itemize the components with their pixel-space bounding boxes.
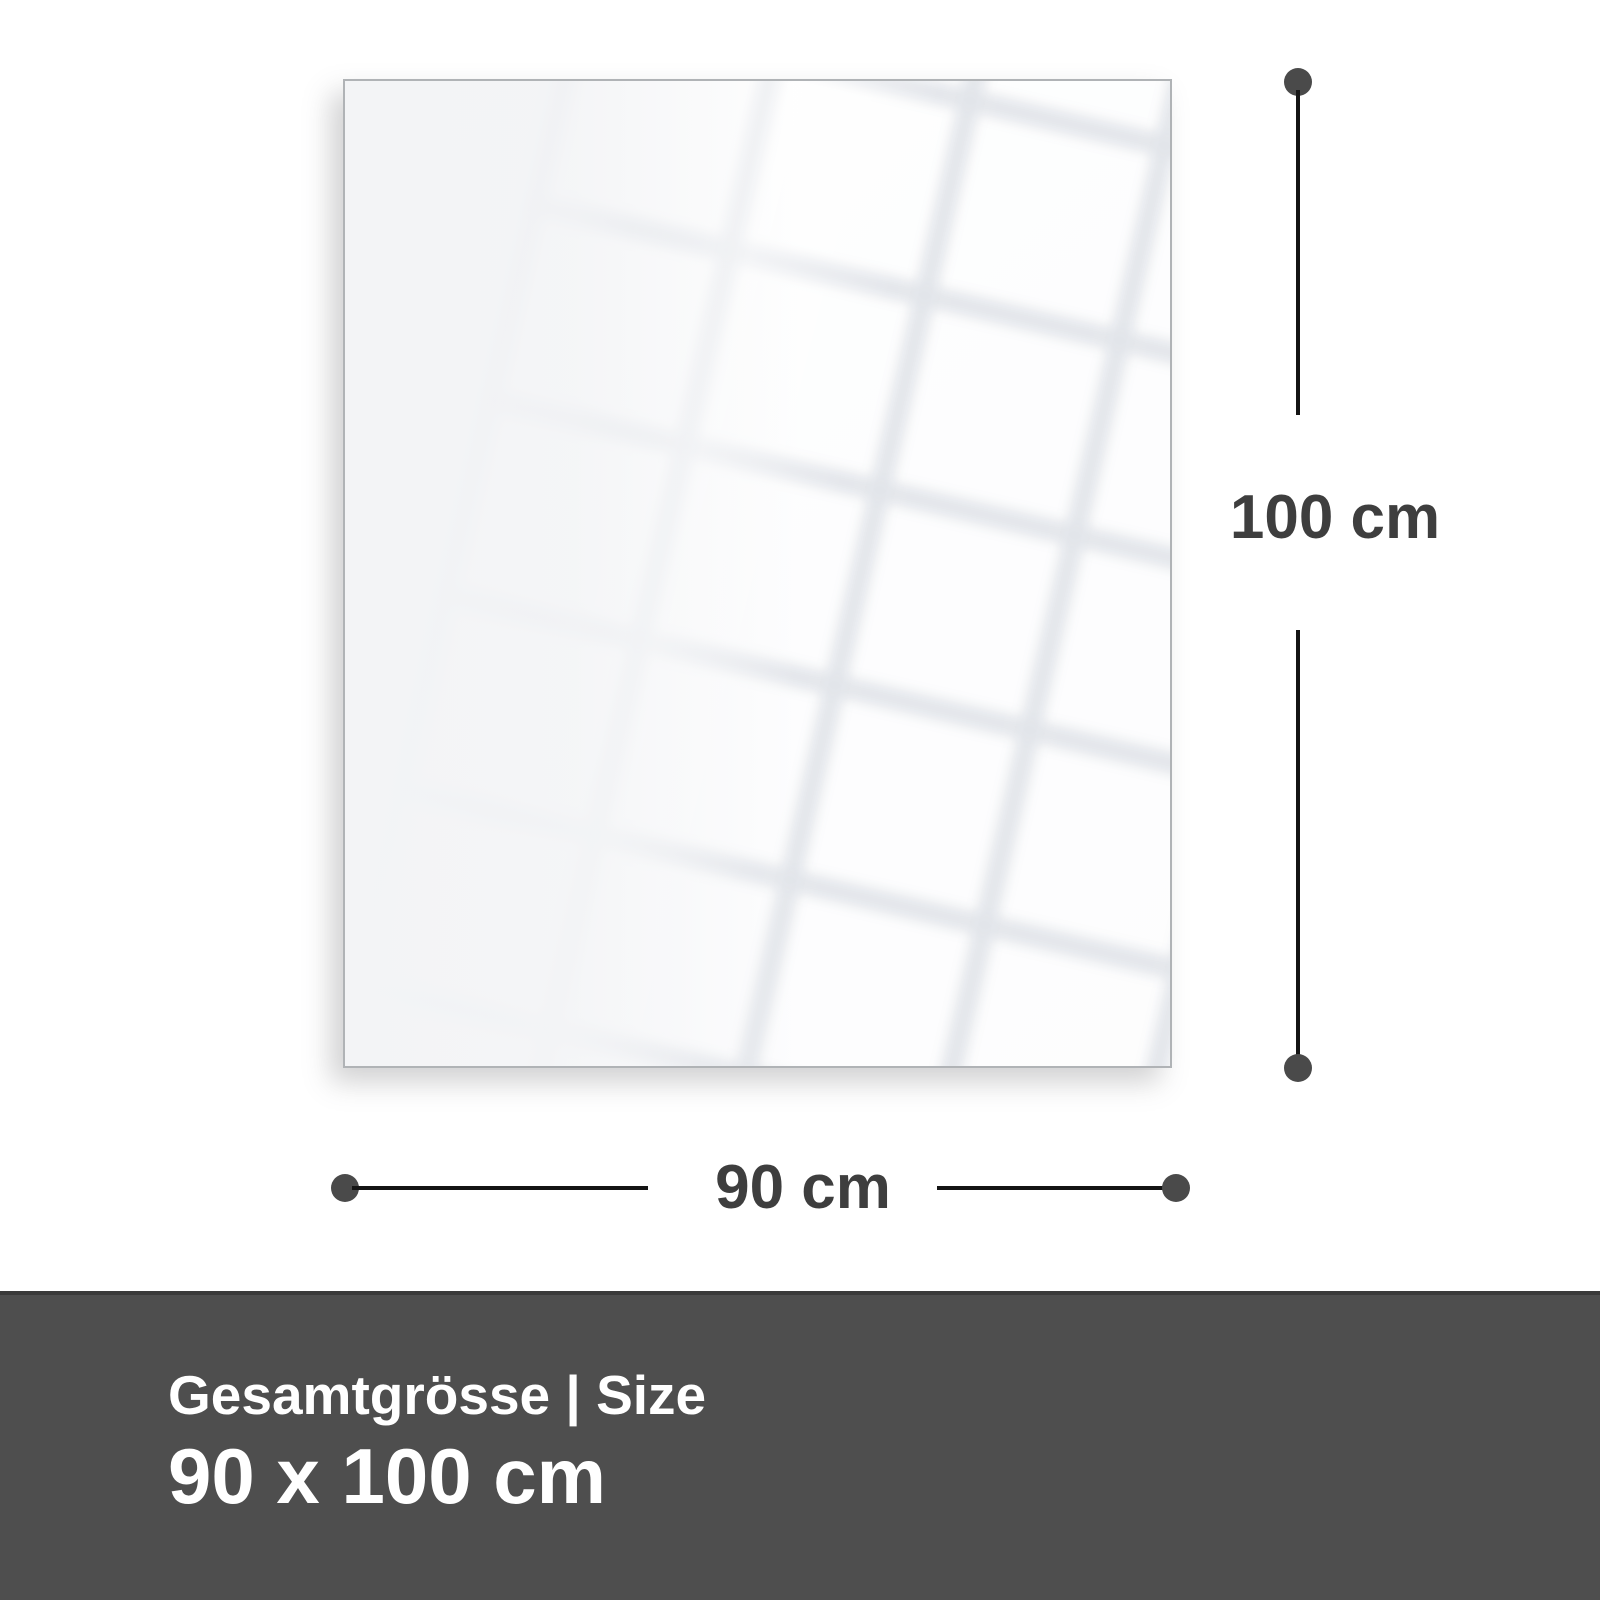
horizontal-dimension-line-right (937, 1186, 1169, 1190)
horizontal-dimension-line-left (352, 1186, 648, 1190)
product-size-diagram: 100 cm 90 cm Gesamtgrösse | Size 90 x 10… (0, 0, 1600, 1600)
height-dimension-label: 100 cm (1185, 483, 1485, 553)
reflection-fade (345, 81, 1170, 1066)
glass-panel (343, 79, 1172, 1068)
vertical-dimension-line-upper (1296, 90, 1300, 415)
footer-title: Gesamtgrösse | Size (168, 1365, 1600, 1426)
dimension-endpoint-dot-right (1162, 1174, 1190, 1202)
width-dimension-label: 90 cm (653, 1153, 953, 1223)
dimension-endpoint-dot-bottom (1284, 1054, 1312, 1082)
footer-size-value: 90 x 100 cm (168, 1434, 1600, 1520)
footer-band: Gesamtgrösse | Size 90 x 100 cm (0, 1291, 1600, 1600)
vertical-dimension-line-lower (1296, 630, 1300, 1060)
